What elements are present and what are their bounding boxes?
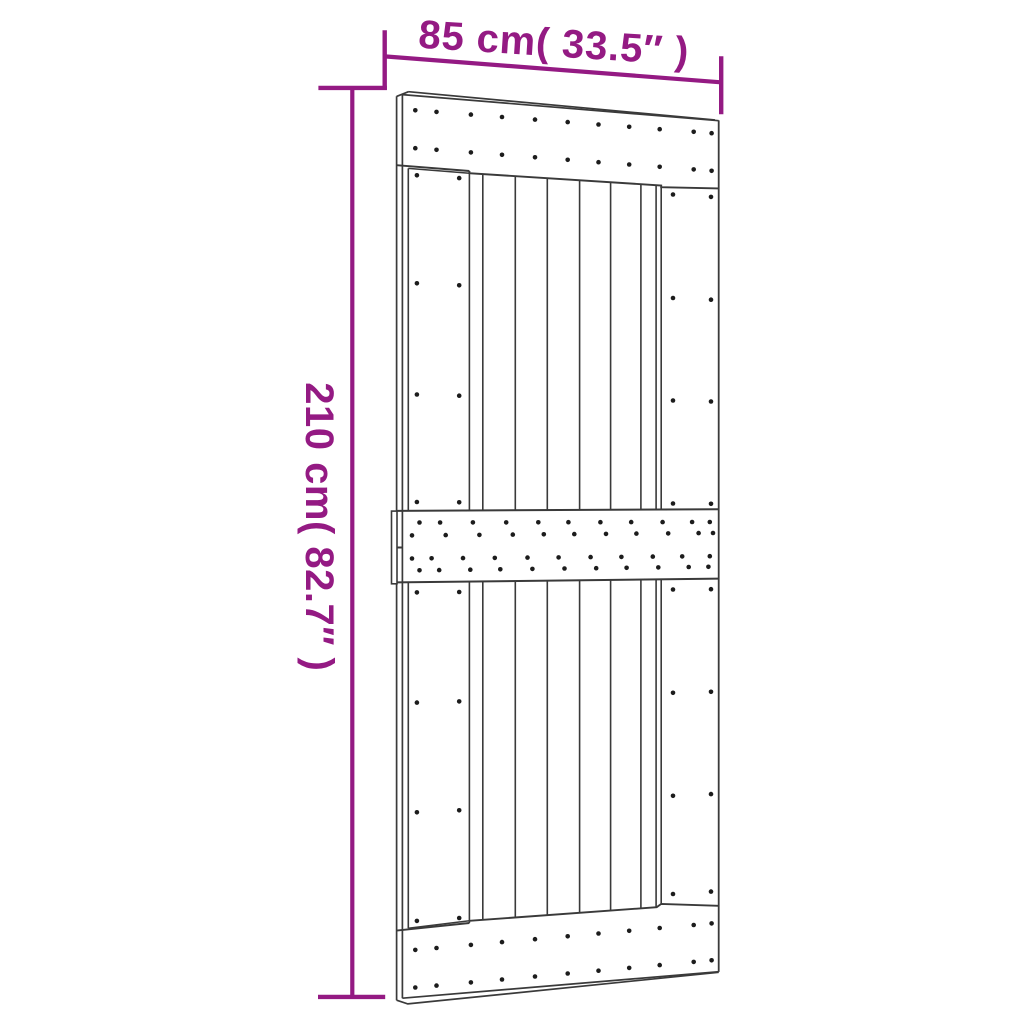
svg-text:85 cm( 33.5″ ): 85 cm( 33.5″ )	[417, 13, 690, 74]
svg-text:210 cm( 82.7″ ): 210 cm( 82.7″ )	[297, 382, 341, 671]
